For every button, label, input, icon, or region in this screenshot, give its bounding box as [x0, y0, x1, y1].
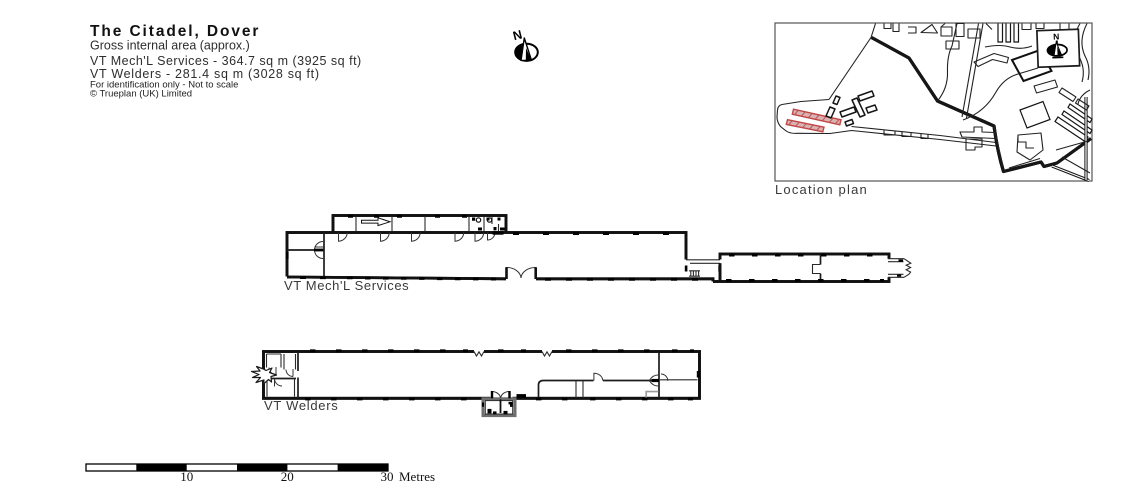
svg-text:Location plan: Location plan: [775, 182, 868, 197]
svg-text:VT Mech'L Services: VT Mech'L Services: [284, 278, 409, 293]
svg-text:30: 30: [381, 469, 394, 484]
svg-text:N: N: [1053, 31, 1059, 41]
svg-text:VT Mech'L Services - 364.7 sq: VT Mech'L Services - 364.7 sq m (3925 sq…: [90, 54, 362, 68]
svg-text:© Trueplan (UK) Limited: © Trueplan (UK) Limited: [90, 89, 192, 100]
svg-text:Metres: Metres: [399, 469, 435, 484]
svg-text:The Citadel, Dover: The Citadel, Dover: [90, 23, 260, 40]
svg-text:Gross internal area (approx.): Gross internal area (approx.): [90, 39, 250, 53]
svg-text:20: 20: [281, 469, 294, 484]
svg-text:10: 10: [180, 469, 193, 484]
svg-text:VT Welders: VT Welders: [264, 398, 338, 413]
